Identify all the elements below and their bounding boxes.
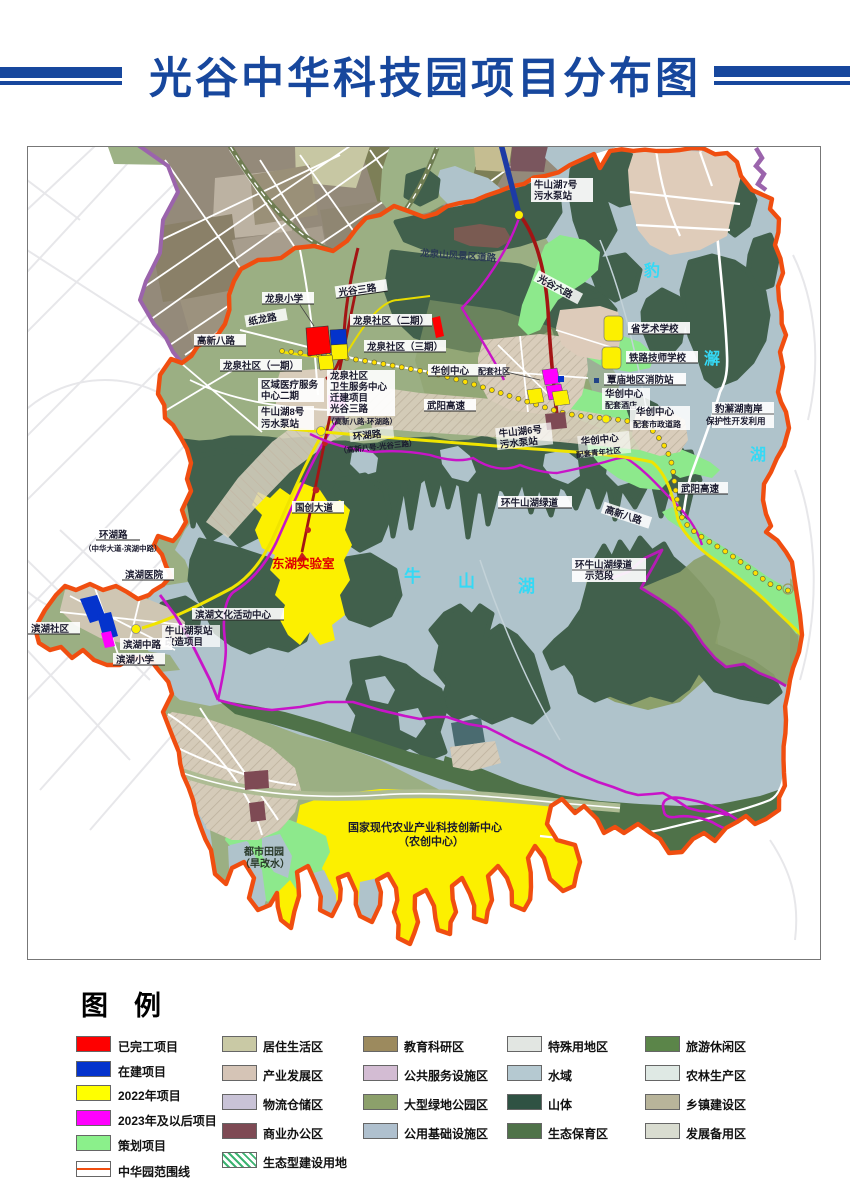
svg-text:都市田园: 都市田园 bbox=[243, 845, 284, 858]
svg-text:保护性开发利用: 保护性开发利用 bbox=[705, 416, 766, 426]
svg-text:环牛山湖绿道: 环牛山湖绿道 bbox=[501, 497, 559, 509]
svg-text:华创中心: 华创中心 bbox=[605, 388, 644, 400]
svg-text:中心二期: 中心二期 bbox=[261, 390, 299, 402]
svg-text:滨湖文化活动中心: 滨湖文化活动中心 bbox=[195, 609, 272, 621]
svg-text:龙泉社区（一期）: 龙泉社区（一期） bbox=[222, 360, 299, 372]
svg-text:铁路技师学校: 铁路技师学校 bbox=[629, 352, 687, 364]
svg-text:牛: 牛 bbox=[404, 566, 421, 586]
svg-text:龙泉社区（三期）: 龙泉社区（三期） bbox=[366, 341, 443, 353]
svg-text:环牛山湖绿道: 环牛山湖绿道 bbox=[575, 559, 633, 571]
svg-text:（中华大道-滨湖中路）: （中华大道-滨湖中路） bbox=[84, 543, 162, 553]
svg-text:区域医疗服务: 区域医疗服务 bbox=[261, 379, 319, 391]
svg-text:示范段: 示范段 bbox=[585, 570, 614, 582]
svg-text:湖: 湖 bbox=[518, 577, 535, 596]
svg-text:环湖路: 环湖路 bbox=[99, 529, 128, 541]
svg-text:滨湖中路: 滨湖中路 bbox=[123, 639, 162, 651]
svg-text:污水泵站: 污水泵站 bbox=[261, 418, 300, 430]
svg-text:（高新八路-环湖路）: （高新八路-环湖路） bbox=[327, 416, 397, 426]
svg-text:武阳高速: 武阳高速 bbox=[681, 483, 720, 495]
svg-text:华创中心: 华创中心 bbox=[431, 365, 470, 377]
svg-text:东湖实验室: 东湖实验室 bbox=[272, 556, 335, 571]
svg-text:配套社区: 配套社区 bbox=[478, 366, 510, 376]
svg-text:高新八路: 高新八路 bbox=[197, 335, 236, 347]
svg-text:豹澥湖南岸: 豹澥湖南岸 bbox=[714, 403, 763, 415]
svg-text:牛山湖泵站: 牛山湖泵站 bbox=[165, 625, 213, 637]
svg-text:豹: 豹 bbox=[643, 261, 660, 280]
svg-text:湖: 湖 bbox=[750, 446, 766, 464]
svg-text:国创大道: 国创大道 bbox=[295, 502, 334, 514]
svg-text:迁建项目: 迁建项目 bbox=[330, 392, 368, 404]
svg-text:（农创中心）: （农创中心） bbox=[398, 834, 464, 848]
svg-text:污水泵站: 污水泵站 bbox=[534, 190, 573, 202]
svg-text:武阳高速: 武阳高速 bbox=[427, 400, 466, 412]
svg-text:（旱改水）: （旱改水） bbox=[240, 857, 290, 870]
svg-text:国家现代农业产业科技创新中心: 国家现代农业产业科技创新中心 bbox=[348, 820, 502, 834]
svg-text:牛山湖7号: 牛山湖7号 bbox=[534, 179, 578, 191]
svg-text:滨湖社区: 滨湖社区 bbox=[31, 623, 70, 635]
svg-text:龙泉小学: 龙泉小学 bbox=[264, 293, 304, 305]
svg-text:省艺术学校: 省艺术学校 bbox=[630, 323, 679, 335]
svg-text:卫生服务中心: 卫生服务中心 bbox=[330, 381, 388, 393]
svg-text:华创中心: 华创中心 bbox=[636, 406, 675, 418]
svg-text:配套市政道路: 配套市政道路 bbox=[633, 419, 682, 429]
svg-text:澥: 澥 bbox=[704, 349, 720, 368]
svg-text:覃庙地区消防站: 覃庙地区消防站 bbox=[607, 374, 674, 386]
svg-text:龙泉社区（二期）: 龙泉社区（二期） bbox=[352, 315, 429, 327]
svg-text:滨湖小学: 滨湖小学 bbox=[116, 654, 155, 666]
svg-text:光谷三路: 光谷三路 bbox=[329, 403, 369, 415]
svg-text:山: 山 bbox=[458, 572, 475, 591]
svg-text:滨湖医院: 滨湖医院 bbox=[125, 569, 164, 581]
svg-text:牛山湖8号: 牛山湖8号 bbox=[261, 406, 305, 418]
svg-text:龙泉社区: 龙泉社区 bbox=[329, 370, 369, 382]
